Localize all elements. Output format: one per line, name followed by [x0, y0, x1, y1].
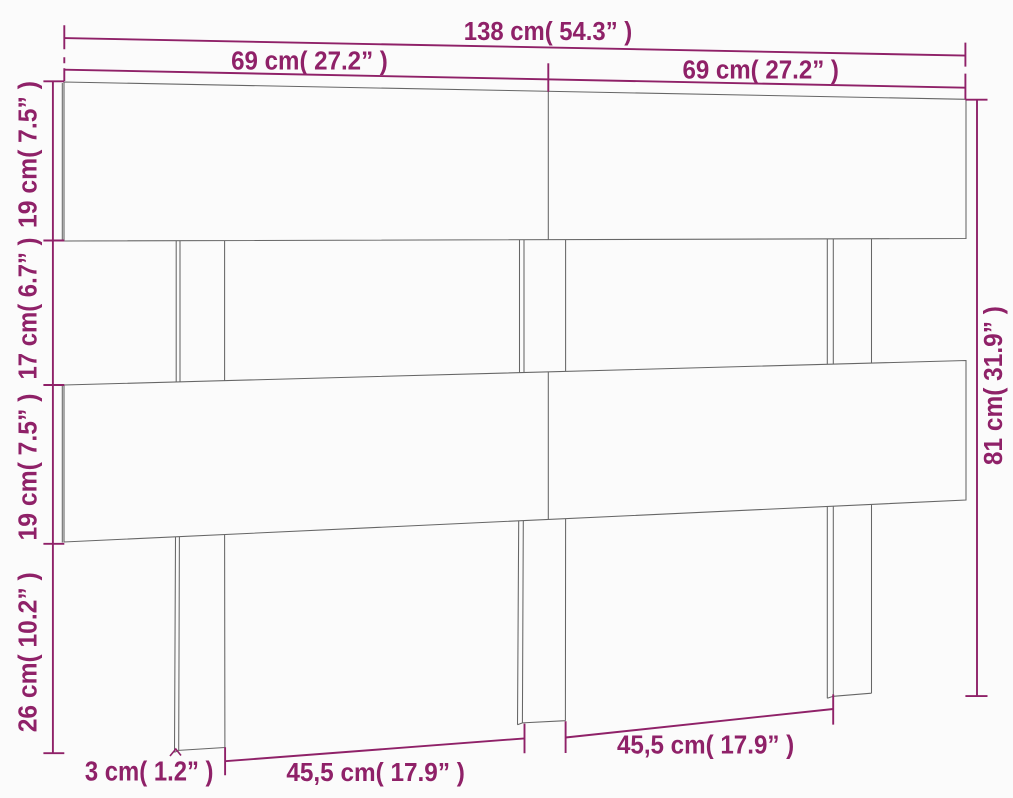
- svg-text:19 cm( 7.5” ): 19 cm( 7.5” ): [15, 81, 43, 228]
- svg-text:19 cm( 7.5” ): 19 cm( 7.5” ): [15, 394, 43, 541]
- svg-text:69 cm( 27.2” ): 69 cm( 27.2” ): [231, 48, 388, 76]
- svg-text:69 cm( 27.2” ): 69 cm( 27.2” ): [682, 56, 839, 84]
- svg-text:45,5 cm( 17.9” ): 45,5 cm( 17.9” ): [617, 729, 794, 759]
- svg-text:26 cm( 10.2” ): 26 cm( 10.2” ): [15, 572, 43, 732]
- svg-text:81 cm( 31.9” ): 81 cm( 31.9” ): [980, 306, 1008, 465]
- svg-text:17 cm( 6.7” ): 17 cm( 6.7” ): [15, 238, 43, 380]
- svg-text:138 cm( 54.3” ): 138 cm( 54.3” ): [464, 18, 632, 46]
- svg-text:45,5 cm( 17.9” ): 45,5 cm( 17.9” ): [286, 757, 465, 787]
- svg-text:3 cm( 1.2” ): 3 cm( 1.2” ): [85, 756, 214, 787]
